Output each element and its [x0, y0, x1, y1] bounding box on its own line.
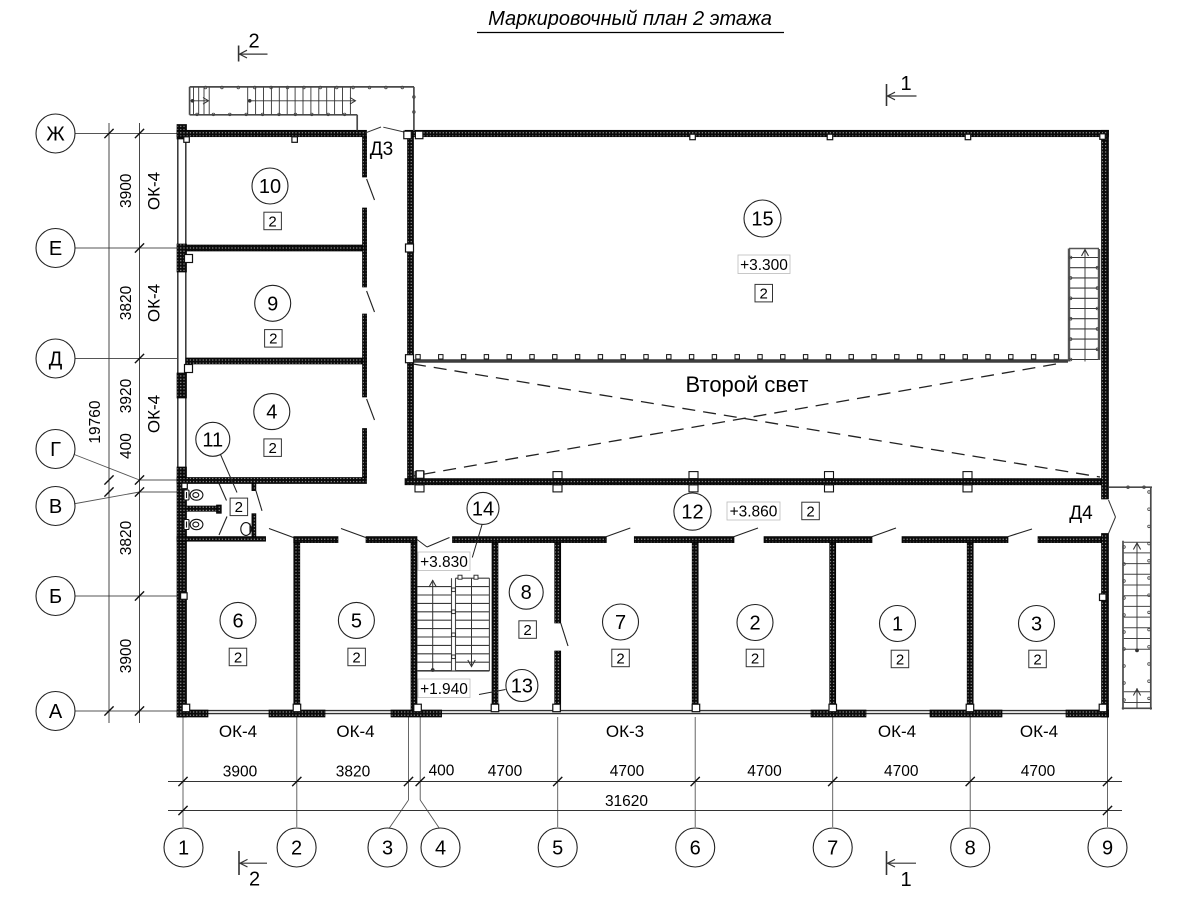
svg-text:2: 2 — [806, 503, 814, 520]
svg-text:+3.860: +3.860 — [730, 504, 778, 521]
svg-text:5: 5 — [552, 838, 563, 860]
svg-text:4: 4 — [266, 402, 277, 424]
svg-text:400: 400 — [118, 433, 135, 459]
svg-text:2: 2 — [751, 650, 759, 667]
svg-text:9: 9 — [267, 293, 278, 315]
svg-text:2: 2 — [235, 499, 243, 516]
svg-text:3820: 3820 — [118, 520, 135, 555]
svg-text:ОК-4: ОК-4 — [336, 722, 374, 741]
svg-text:3820: 3820 — [118, 285, 135, 320]
svg-text:ОК-4: ОК-4 — [145, 284, 164, 322]
svg-text:2: 2 — [749, 613, 760, 635]
svg-text:13: 13 — [511, 676, 533, 698]
svg-text:2: 2 — [291, 838, 302, 860]
svg-text:Д4: Д4 — [1069, 503, 1093, 524]
svg-text:10: 10 — [259, 176, 281, 198]
svg-text:31620: 31620 — [605, 793, 648, 810]
svg-text:8: 8 — [965, 838, 976, 860]
svg-text:ОК-3: ОК-3 — [606, 722, 644, 741]
svg-text:12: 12 — [681, 502, 703, 524]
svg-text:Второй свет: Второй свет — [686, 372, 809, 397]
svg-text:4700: 4700 — [747, 763, 782, 780]
svg-text:14: 14 — [472, 498, 494, 520]
svg-text:Маркировочный план 2 этажа: Маркировочный план 2 этажа — [488, 8, 772, 30]
svg-text:2: 2 — [234, 649, 242, 666]
svg-text:ОК-4: ОК-4 — [1020, 722, 1058, 741]
svg-text:8: 8 — [521, 582, 532, 604]
svg-text:2: 2 — [248, 31, 259, 53]
svg-text:7: 7 — [615, 612, 626, 634]
svg-text:1: 1 — [900, 73, 911, 95]
svg-text:Ж: Ж — [46, 124, 65, 146]
svg-text:3: 3 — [1031, 614, 1042, 636]
svg-text:2: 2 — [268, 213, 276, 230]
svg-text:Г: Г — [50, 439, 61, 461]
svg-text:3900: 3900 — [118, 638, 135, 673]
svg-text:1: 1 — [892, 614, 903, 636]
svg-text:4700: 4700 — [488, 763, 523, 780]
svg-text:4700: 4700 — [884, 763, 919, 780]
svg-text:19760: 19760 — [87, 400, 104, 443]
svg-text:3920: 3920 — [118, 378, 135, 413]
svg-text:+3.830: +3.830 — [420, 554, 468, 571]
svg-text:2: 2 — [1033, 651, 1041, 668]
svg-text:2: 2 — [896, 651, 904, 668]
svg-text:4700: 4700 — [1021, 763, 1056, 780]
svg-text:Д: Д — [49, 349, 63, 371]
svg-text:2: 2 — [523, 622, 531, 639]
svg-text:2: 2 — [269, 331, 277, 348]
svg-text:7: 7 — [827, 838, 838, 860]
svg-text:Д3: Д3 — [370, 139, 393, 160]
svg-text:+1.940: +1.940 — [420, 681, 468, 698]
svg-text:Б: Б — [49, 586, 62, 608]
svg-text:2: 2 — [760, 286, 768, 303]
svg-text:5: 5 — [351, 610, 362, 632]
svg-text:6: 6 — [690, 838, 701, 860]
svg-text:ОК-4: ОК-4 — [878, 722, 916, 741]
svg-text:2: 2 — [352, 649, 360, 666]
svg-text:4: 4 — [435, 838, 446, 860]
svg-text:6: 6 — [232, 610, 243, 632]
svg-text:3900: 3900 — [118, 173, 135, 208]
svg-text:9: 9 — [1102, 838, 1113, 860]
svg-text:3900: 3900 — [223, 764, 258, 781]
svg-text:1: 1 — [900, 869, 911, 891]
svg-text:ОК-4: ОК-4 — [219, 722, 257, 741]
svg-text:+3.300: +3.300 — [740, 257, 788, 274]
svg-text:2: 2 — [249, 869, 260, 891]
svg-text:В: В — [49, 496, 62, 518]
svg-text:400: 400 — [429, 763, 455, 780]
svg-text:2: 2 — [269, 440, 277, 457]
svg-text:2: 2 — [616, 650, 624, 667]
svg-text:3820: 3820 — [336, 764, 371, 781]
svg-text:А: А — [49, 701, 63, 723]
svg-text:4700: 4700 — [610, 763, 645, 780]
svg-text:3: 3 — [382, 838, 393, 860]
svg-text:ОК-4: ОК-4 — [145, 395, 164, 433]
svg-text:11: 11 — [202, 429, 223, 451]
svg-text:Е: Е — [49, 238, 62, 260]
svg-text:ОК-4: ОК-4 — [145, 172, 164, 210]
svg-text:1: 1 — [178, 838, 189, 860]
svg-text:15: 15 — [751, 209, 773, 231]
